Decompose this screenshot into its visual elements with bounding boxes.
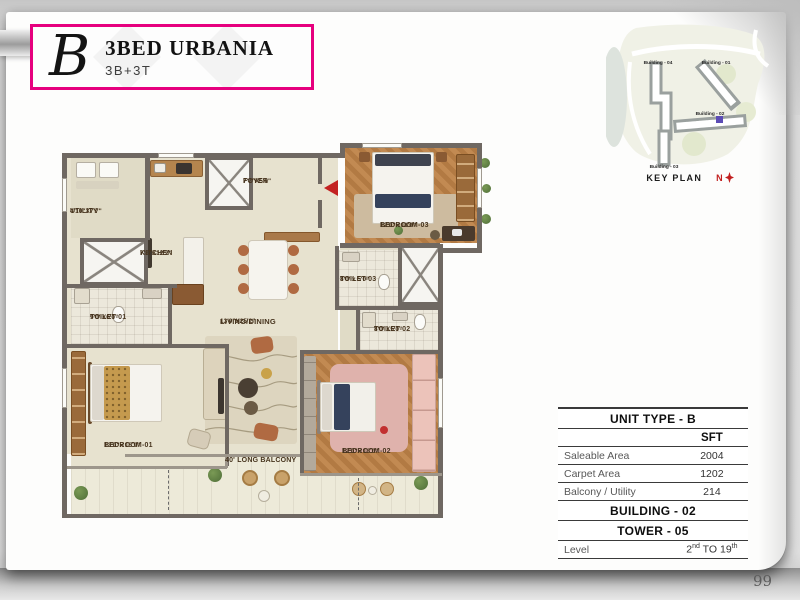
building-02-label: Building - 02 bbox=[696, 111, 725, 117]
shower bbox=[74, 288, 90, 304]
vanity bbox=[392, 312, 408, 321]
row-value: 1202 bbox=[676, 468, 748, 480]
vanity bbox=[142, 288, 162, 299]
floor-plan: UTILITY 4'10"X7'7" KITCHEN 7'8"X12'2" TO… bbox=[62, 138, 490, 522]
wall-segment bbox=[62, 153, 345, 158]
info-table: UNIT TYPE - B SFT Saleable Area 2004 Car… bbox=[558, 407, 748, 559]
window bbox=[62, 368, 67, 408]
wall-segment bbox=[168, 284, 172, 348]
vanity bbox=[342, 252, 360, 262]
sft-header: SFT bbox=[676, 432, 748, 444]
washer bbox=[76, 162, 96, 178]
toilet-wc bbox=[414, 314, 426, 330]
wall-segment bbox=[225, 348, 229, 466]
wardrobe-pink bbox=[412, 354, 436, 472]
balcony-glass bbox=[300, 473, 442, 476]
side-table bbox=[261, 368, 272, 379]
key-plan-label: KEY PLAN bbox=[646, 173, 702, 183]
window bbox=[362, 143, 402, 148]
window bbox=[158, 153, 194, 158]
building-04-label: Building - 04 bbox=[644, 60, 673, 66]
bed-pillows bbox=[375, 154, 431, 166]
bed-throw bbox=[375, 194, 431, 208]
shaft-box bbox=[398, 244, 443, 306]
toilet-wc bbox=[378, 274, 390, 290]
brochure-page: B 3BED URBANIA 3B+3T bbox=[0, 0, 800, 600]
balcony-floor bbox=[71, 469, 225, 514]
plant bbox=[414, 476, 428, 490]
row-value: 2004 bbox=[676, 450, 748, 462]
wall-segment bbox=[300, 350, 443, 354]
row-label: Saleable Area bbox=[558, 450, 676, 462]
wall-segment bbox=[440, 248, 482, 253]
dining-chair bbox=[238, 283, 249, 294]
wall-segment bbox=[318, 200, 322, 228]
level-value: 2nd TO 19th bbox=[676, 543, 748, 556]
coffee-table bbox=[238, 378, 258, 398]
bed-pillows bbox=[92, 366, 104, 420]
row-value: 214 bbox=[676, 486, 748, 498]
table-title-row: UNIT TYPE - B bbox=[558, 409, 748, 429]
dining-chair bbox=[238, 264, 249, 275]
balcony-chair bbox=[352, 482, 366, 496]
wall-segment bbox=[300, 350, 304, 475]
laptop bbox=[452, 229, 462, 236]
header-text: 3BED URBANIA 3B+3T bbox=[105, 36, 274, 78]
wall-segment bbox=[318, 158, 322, 184]
wicker-chair bbox=[242, 470, 258, 486]
window bbox=[477, 168, 482, 208]
building-label: BUILDING - 02 bbox=[610, 504, 696, 518]
wall-segment bbox=[356, 306, 443, 310]
page-title: 3BED URBANIA bbox=[105, 36, 274, 61]
bed-throw-gold bbox=[104, 366, 130, 420]
dining-chair bbox=[288, 283, 299, 294]
balcony-chair bbox=[380, 482, 394, 496]
utility-shelf bbox=[76, 181, 119, 189]
row-label: Balcony / Utility bbox=[558, 486, 676, 498]
wall-segment bbox=[67, 284, 177, 288]
page-bottom-shadow bbox=[0, 568, 800, 600]
red-accent bbox=[380, 426, 388, 434]
page-subtitle: 3B+3T bbox=[105, 63, 274, 78]
tower-label: TOWER - 05 bbox=[617, 524, 688, 538]
coffee-table bbox=[244, 401, 258, 415]
bed-pillows bbox=[322, 384, 332, 430]
plant bbox=[482, 184, 491, 193]
dresser bbox=[304, 356, 316, 471]
header-badge: B 3BED URBANIA 3B+3T bbox=[30, 24, 314, 90]
stove bbox=[176, 163, 192, 174]
unit-type-title: UNIT TYPE - B bbox=[610, 412, 696, 426]
table-row: Carpet Area 1202 bbox=[558, 465, 748, 483]
plant bbox=[481, 214, 491, 224]
wall-segment bbox=[335, 246, 339, 310]
nightstand bbox=[436, 152, 447, 162]
balcony-table bbox=[368, 486, 377, 495]
building-row: BUILDING - 02 bbox=[558, 501, 748, 521]
wicker-chair bbox=[274, 470, 290, 486]
compass-icon bbox=[725, 172, 734, 183]
wall-segment bbox=[145, 158, 150, 240]
key-plan-map: Building - 04 Building - 01 Building - 0… bbox=[606, 22, 774, 172]
window bbox=[62, 178, 67, 212]
wall-segment bbox=[340, 143, 345, 158]
building-01-label: Building - 01 bbox=[702, 60, 731, 66]
armchair bbox=[250, 336, 274, 355]
north-label: N bbox=[716, 173, 723, 183]
tv-unit bbox=[218, 378, 224, 414]
shaft-box bbox=[80, 238, 148, 286]
dining-table bbox=[248, 240, 288, 300]
wall-segment bbox=[67, 344, 229, 348]
page-number: 99 bbox=[753, 572, 772, 590]
window bbox=[438, 378, 443, 428]
wall-segment bbox=[62, 514, 443, 518]
table-unit-header-row: SFT bbox=[558, 429, 748, 447]
plant bbox=[208, 468, 222, 482]
highlighted-unit bbox=[716, 116, 723, 123]
dimension-line bbox=[168, 470, 169, 510]
wardrobe bbox=[456, 154, 475, 222]
level-row: Level 2nd TO 19th bbox=[558, 541, 748, 559]
north-indicator: N bbox=[716, 172, 734, 183]
dining-chair bbox=[238, 245, 249, 256]
balcony-glass bbox=[67, 466, 227, 469]
bed-throw bbox=[334, 384, 350, 430]
dimension-line bbox=[358, 478, 359, 510]
level-label: Level bbox=[558, 544, 676, 556]
kitchen-sink bbox=[154, 163, 166, 173]
wall-segment bbox=[340, 243, 440, 248]
table-row: Balcony / Utility 214 bbox=[558, 483, 748, 501]
wall-segment bbox=[356, 308, 360, 352]
wardrobe bbox=[71, 351, 86, 456]
dining-chair bbox=[288, 245, 299, 256]
nightstand bbox=[359, 152, 370, 162]
row-label: Carpet Area bbox=[558, 468, 676, 480]
key-plan-caption: KEY PLAN N bbox=[606, 172, 774, 183]
washer bbox=[99, 162, 119, 178]
plant bbox=[74, 486, 88, 500]
site-map: Building - 04 Building - 01 Building - 0… bbox=[606, 22, 774, 172]
logo-letter: B bbox=[49, 33, 90, 81]
table-row: Saleable Area 2004 bbox=[558, 447, 748, 465]
balcony-table bbox=[258, 490, 270, 502]
desk-chair bbox=[430, 230, 440, 240]
tower-row: TOWER - 05 bbox=[558, 521, 748, 541]
entry-arrow-icon bbox=[324, 180, 338, 196]
building-03-label: Building - 03 bbox=[650, 164, 679, 170]
dining-chair bbox=[288, 264, 299, 275]
